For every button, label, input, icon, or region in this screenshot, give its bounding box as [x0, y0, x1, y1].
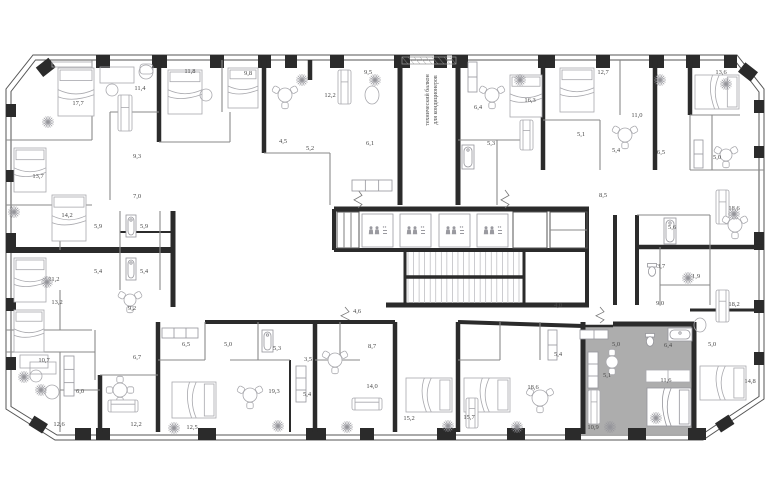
svg-text:5,0: 5,0: [612, 341, 620, 348]
svg-text:8,5: 8,5: [599, 192, 607, 199]
svg-text:17,7: 17,7: [72, 100, 84, 107]
svg-text:8,7: 8,7: [368, 343, 377, 350]
svg-text:11,4: 11,4: [134, 85, 146, 92]
svg-text:12,6: 12,6: [53, 421, 65, 428]
svg-text:10,7: 10,7: [38, 357, 50, 364]
svg-text:5,9: 5,9: [94, 223, 102, 230]
svg-text:6,4: 6,4: [474, 104, 483, 111]
svg-text:14,2: 14,2: [61, 212, 72, 219]
svg-text:4,5: 4,5: [279, 138, 287, 145]
svg-text:11,8: 11,8: [184, 68, 195, 75]
svg-text:18,6: 18,6: [728, 205, 740, 212]
svg-text:для кондиционеров: для кондиционеров: [433, 75, 439, 125]
svg-text:6,1: 6,1: [366, 140, 374, 147]
svg-text:16,3: 16,3: [524, 97, 535, 104]
svg-text:12,2: 12,2: [130, 421, 141, 428]
svg-text:5,1: 5,1: [577, 131, 585, 138]
svg-text:18,2: 18,2: [728, 301, 739, 308]
svg-text:5,4: 5,4: [612, 147, 621, 154]
svg-text:6,7: 6,7: [133, 354, 142, 361]
svg-text:7,0: 7,0: [133, 193, 141, 200]
svg-text:10,9: 10,9: [587, 424, 598, 431]
svg-text:5,3: 5,3: [273, 345, 281, 352]
svg-text:11,6: 11,6: [660, 377, 672, 384]
svg-text:5,9: 5,9: [140, 223, 148, 230]
svg-text:4,6: 4,6: [353, 308, 362, 315]
svg-text:5,4: 5,4: [554, 351, 563, 358]
svg-text:15,2: 15,2: [403, 415, 414, 422]
svg-text:5,4: 5,4: [140, 268, 149, 275]
svg-text:15,7: 15,7: [463, 414, 475, 421]
svg-text:3,5: 3,5: [304, 356, 312, 363]
svg-text:5,2: 5,2: [306, 145, 314, 152]
svg-text:9,0: 9,0: [656, 300, 664, 307]
svg-text:19,3: 19,3: [268, 388, 279, 395]
svg-text:6,4: 6,4: [664, 342, 673, 349]
svg-text:9,5: 9,5: [364, 69, 372, 76]
svg-text:5,0: 5,0: [708, 341, 716, 348]
svg-text:1,9: 1,9: [692, 273, 700, 280]
svg-text:13,2: 13,2: [51, 299, 62, 306]
svg-text:12,2: 12,2: [324, 92, 335, 99]
svg-text:12,7: 12,7: [597, 69, 609, 76]
svg-text:9,8: 9,8: [244, 70, 252, 77]
svg-text:6,5: 6,5: [182, 341, 190, 348]
svg-text:5,4: 5,4: [303, 391, 312, 398]
svg-text:5,0: 5,0: [224, 341, 232, 348]
svg-text:5,6: 5,6: [668, 224, 677, 231]
svg-text:12,5: 12,5: [186, 424, 197, 431]
svg-text:13,6: 13,6: [715, 69, 727, 76]
svg-text:5,4: 5,4: [94, 268, 103, 275]
svg-text:5,1: 5,1: [603, 372, 611, 379]
svg-text:6,0: 6,0: [76, 388, 84, 395]
svg-text:9,2: 9,2: [128, 305, 136, 312]
svg-text:технический балкон: технический балкон: [424, 73, 431, 125]
svg-text:18,6: 18,6: [527, 384, 539, 391]
svg-text:9,3: 9,3: [133, 153, 141, 160]
svg-text:14,8: 14,8: [744, 378, 755, 385]
svg-text:13,7: 13,7: [32, 173, 44, 180]
svg-text:11,0: 11,0: [631, 112, 642, 119]
svg-text:6,5: 6,5: [657, 149, 665, 156]
svg-text:4,0: 4,0: [554, 302, 562, 309]
svg-text:14,0: 14,0: [366, 383, 377, 390]
svg-text:5,0: 5,0: [713, 154, 721, 161]
svg-text:3,7: 3,7: [657, 263, 666, 270]
svg-text:5,3: 5,3: [487, 140, 495, 147]
